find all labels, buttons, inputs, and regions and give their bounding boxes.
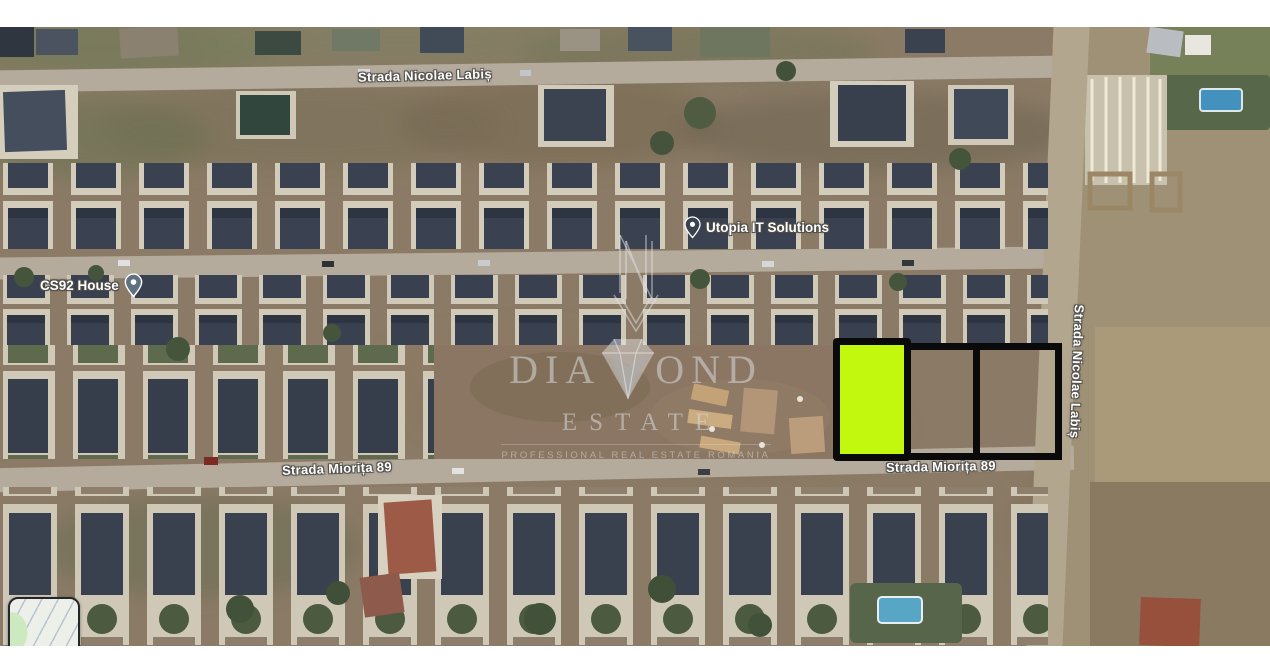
poi-utopia-it-solutions[interactable]: Utopia IT Solutions [684, 215, 829, 239]
poi-label: Utopia IT Solutions [706, 220, 829, 235]
street-label-miorita-right: Strada Miorița 89 [886, 458, 996, 475]
map-layers-thumbnail[interactable] [8, 597, 80, 646]
place-pin-icon [124, 273, 143, 298]
highlighted-plot [833, 338, 911, 461]
outlined-plot-3 [973, 343, 1062, 460]
empty-lots [434, 345, 836, 459]
place-pin-icon [684, 216, 701, 239]
pool [1200, 89, 1242, 111]
poi-cs92-house[interactable]: CS92 House [40, 273, 143, 297]
outlined-plot-2 [904, 343, 980, 460]
real-estate-listing-image: Strada Nicolae Labiș Strada Miorița 89 S… [0, 0, 1270, 672]
poi-label: CS92 House [40, 278, 119, 293]
satellite-map[interactable]: Strada Nicolae Labiș Strada Miorița 89 S… [0, 27, 1270, 646]
